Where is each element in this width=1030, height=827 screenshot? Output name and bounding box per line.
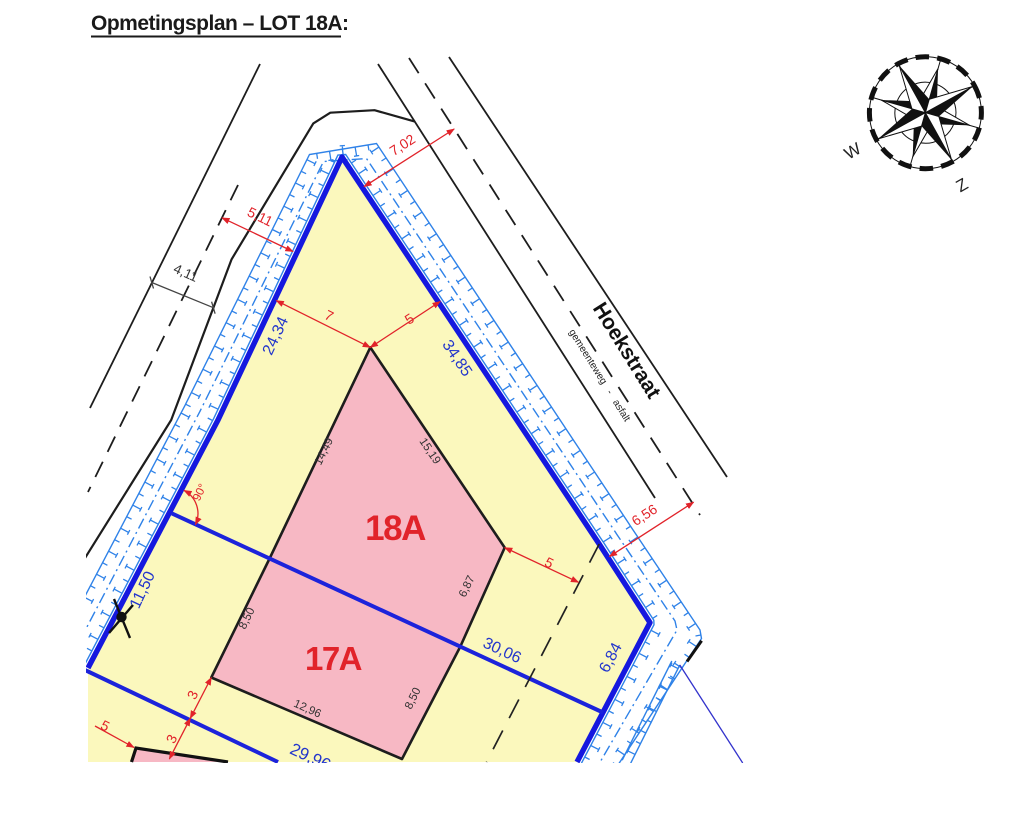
svg-text:17A: 17A [305,640,362,677]
svg-text:Opmetingsplan – LOT 18A:: Opmetingsplan – LOT 18A: [91,12,349,35]
svg-text:18A: 18A [365,509,426,548]
